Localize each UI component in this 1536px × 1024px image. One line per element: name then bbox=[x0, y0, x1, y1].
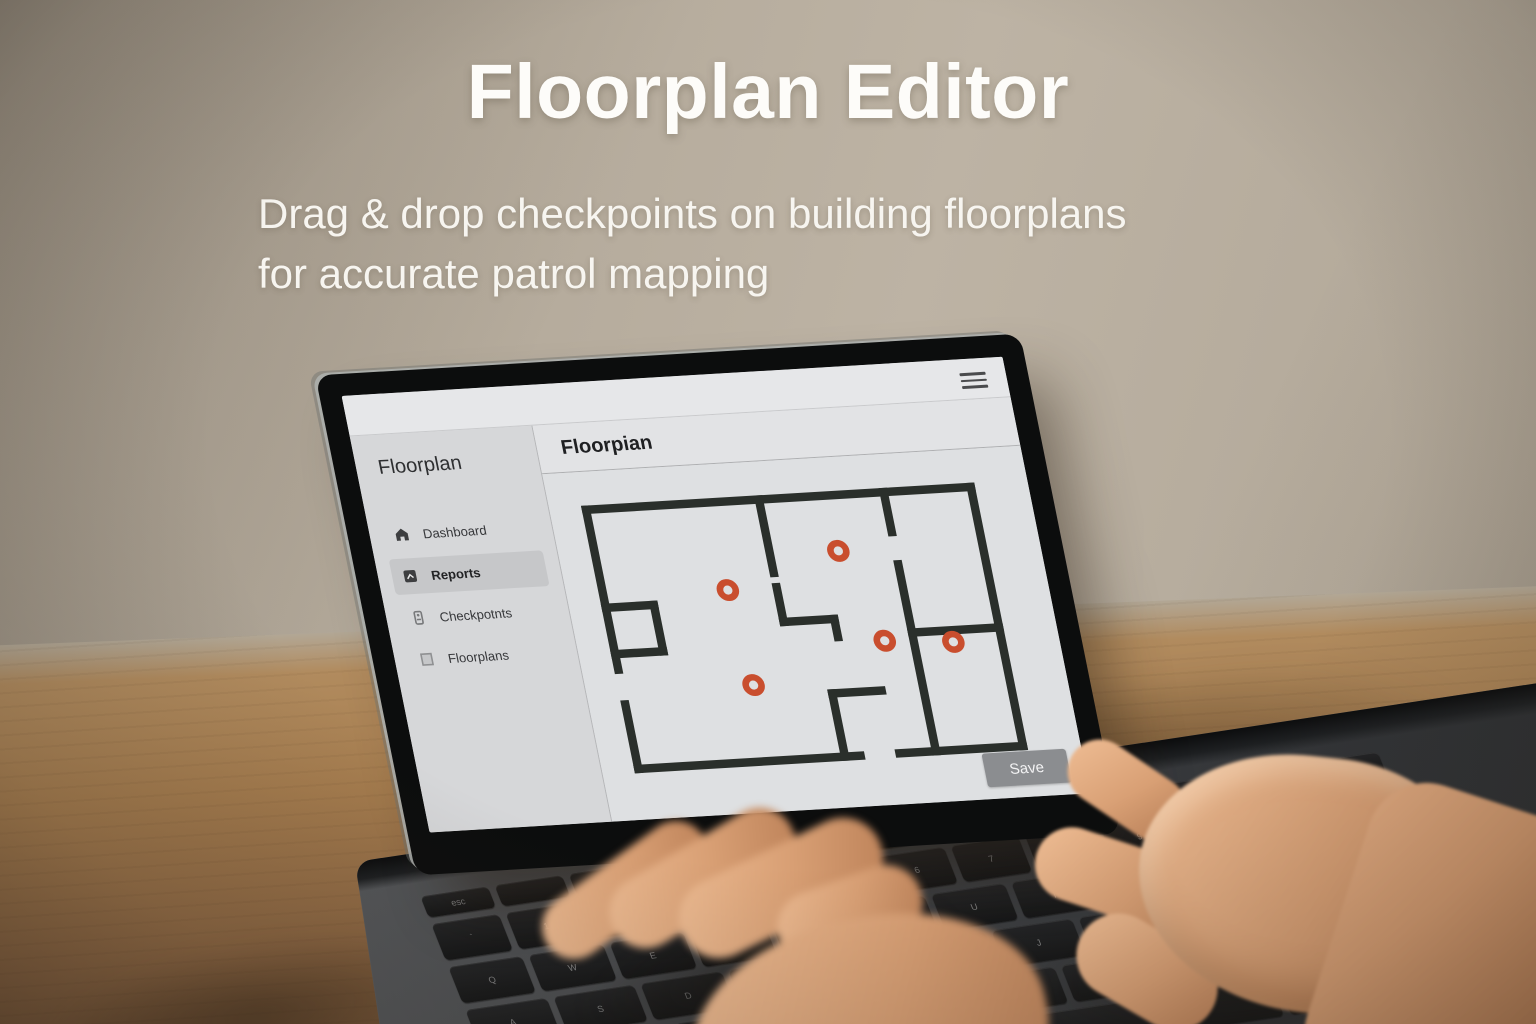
report-icon bbox=[401, 568, 420, 585]
sidebar-item-floorplans[interactable]: Floorplans bbox=[405, 633, 566, 678]
home-icon bbox=[392, 526, 411, 543]
sidebar-item-label: Reports bbox=[430, 565, 482, 583]
hero-subtitle: Drag & drop checkpoints on building floo… bbox=[258, 184, 1127, 304]
laptop-screen: Floorplan Dashboard Reports bbox=[315, 334, 1121, 876]
checkpoint-tag-icon bbox=[409, 609, 428, 626]
hamburger-menu-icon[interactable] bbox=[959, 372, 987, 385]
hero-subtitle-line2: for accurate patrol mapping bbox=[258, 250, 769, 297]
sidebar-item-label: Floorplans bbox=[446, 647, 510, 665]
wall-segment bbox=[784, 619, 835, 622]
wall-segment bbox=[777, 587, 784, 622]
keyboard-key: esc bbox=[420, 886, 496, 917]
main-area: Floorpian Save bbox=[532, 397, 1090, 821]
save-button[interactable]: Save bbox=[981, 749, 1072, 788]
wall-segment bbox=[898, 564, 936, 751]
wall-segment bbox=[638, 756, 860, 769]
hero-subtitle-line1: Drag & drop checkpoints on building floo… bbox=[258, 190, 1127, 237]
app-window: Floorplan Dashboard Reports bbox=[342, 357, 1091, 833]
floorplan-page-icon bbox=[417, 651, 436, 668]
hero-title: Floorplan Editor bbox=[0, 48, 1536, 137]
floorplan-drawing bbox=[559, 464, 1049, 792]
sidebar-item-label: Checkpotnts bbox=[438, 605, 513, 624]
sidebar-nav: Dashboard Reports Checkpotnts bbox=[366, 508, 580, 679]
wall-segment bbox=[654, 605, 663, 651]
wall-segment bbox=[832, 693, 845, 756]
wall-segment bbox=[586, 510, 618, 670]
app-title: Floorplan bbox=[350, 426, 541, 485]
wall-segment bbox=[606, 605, 654, 608]
keyboard-key: Q bbox=[448, 956, 536, 1003]
sidebar-item-dashboard[interactable]: Dashboard bbox=[380, 509, 541, 554]
wall-segment bbox=[834, 619, 838, 637]
sidebar-item-label: Dashboard bbox=[421, 522, 487, 541]
wall-segment bbox=[586, 487, 971, 510]
hero-poster: Floorplan Editor Drag & drop checkpoints… bbox=[0, 0, 1536, 1024]
sidebar-item-reports[interactable]: Reports bbox=[389, 550, 550, 595]
wall-segment bbox=[625, 704, 638, 768]
checkpoint-marker[interactable] bbox=[718, 582, 737, 598]
wall-segment bbox=[615, 651, 663, 654]
checkpoint-marker[interactable] bbox=[829, 543, 848, 559]
checkpoint-marker[interactable] bbox=[744, 677, 763, 693]
checkpoint-marker[interactable] bbox=[944, 634, 963, 650]
wall-segment bbox=[832, 691, 881, 694]
floorplan-canvas[interactable]: Save bbox=[542, 446, 1090, 822]
checkpoint-marker[interactable] bbox=[875, 633, 894, 649]
keyboard-key: A bbox=[465, 998, 560, 1024]
keyboard-key: ` bbox=[431, 914, 513, 960]
sidebar-item-checkpoints[interactable]: Checkpotnts bbox=[397, 592, 558, 637]
wall-segment bbox=[884, 492, 892, 532]
wall-segment bbox=[759, 500, 774, 573]
wall-segment bbox=[971, 487, 1023, 746]
